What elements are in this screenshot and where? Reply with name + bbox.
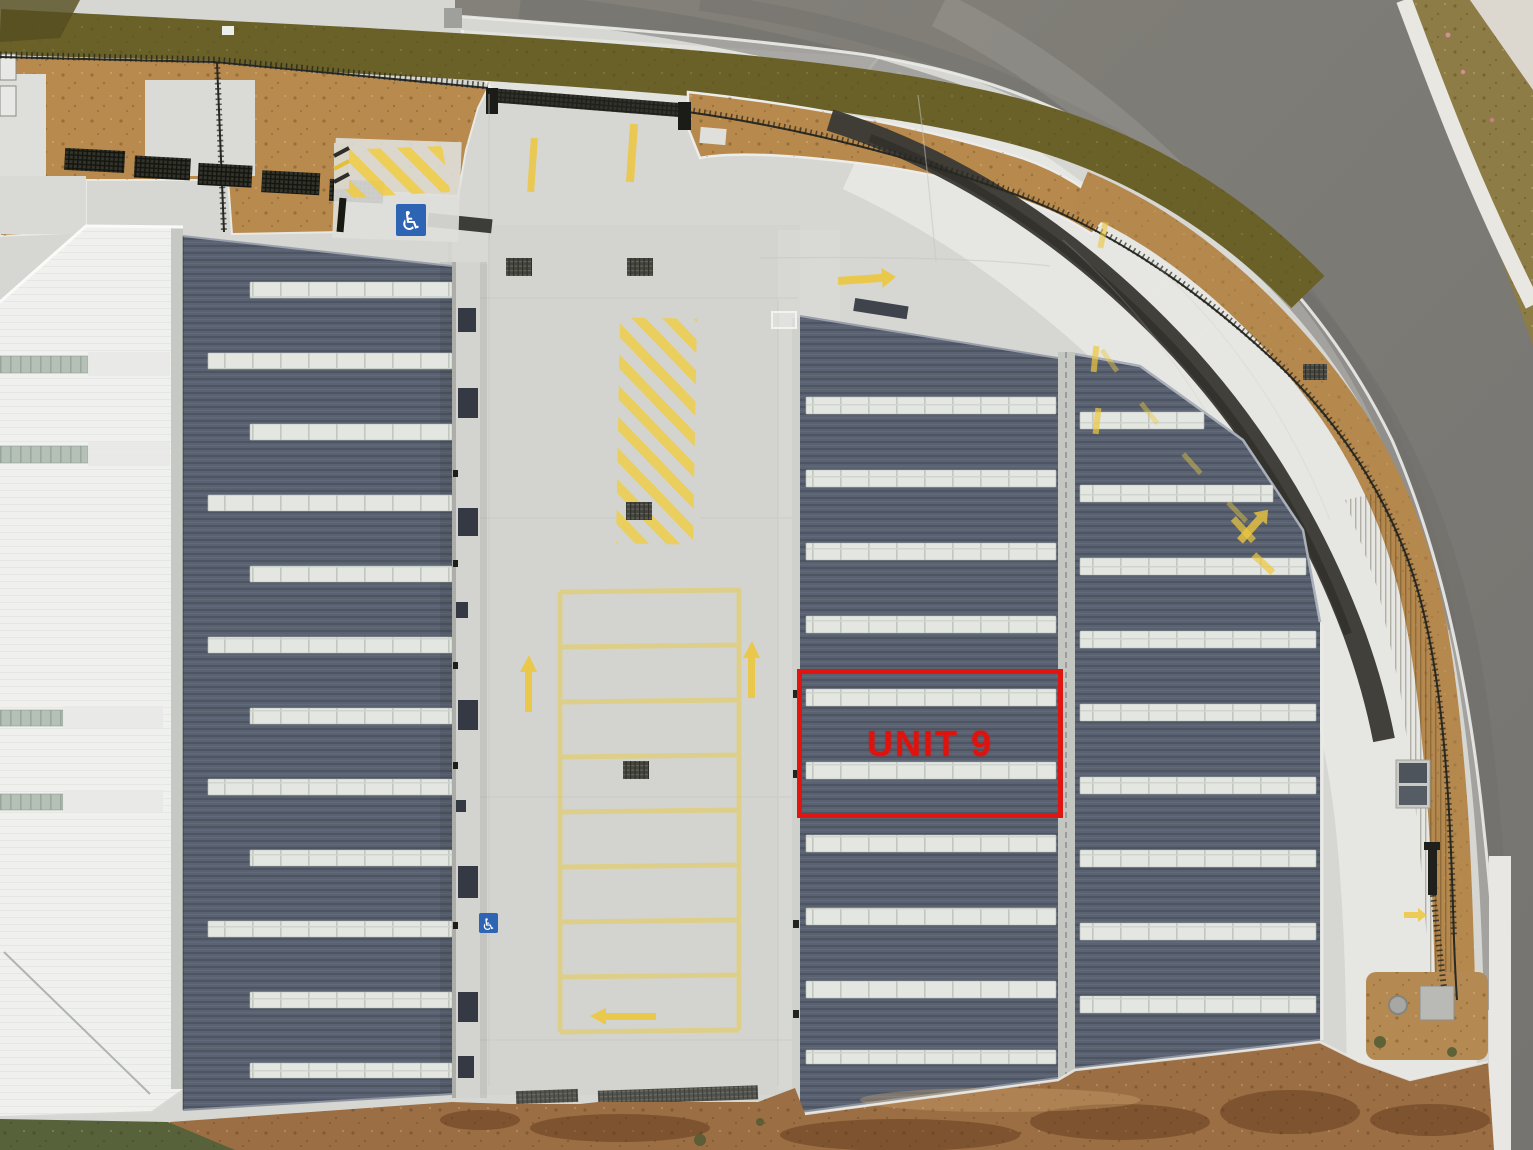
aerial-photo-canvas: ♿ ♿ (0, 0, 1533, 1150)
unit-9-label: UNIT 9 (867, 723, 993, 765)
utility-pad (1420, 986, 1454, 1020)
white-warehouse-roof (0, 226, 183, 1117)
shed (0, 86, 16, 116)
disabled-parking-bay-small: ♿ (479, 913, 498, 934)
hatched-zone-top (338, 146, 450, 198)
manhole-cover (1389, 996, 1407, 1014)
striped-sign (334, 143, 349, 189)
unit-9-annotation-box: UNIT 9 (797, 669, 1063, 818)
gate-post (486, 88, 498, 114)
disabled-parking-bay: ♿ (396, 204, 426, 237)
wheelchair-icon: ♿ (399, 207, 422, 237)
footpath-right (1489, 856, 1511, 1150)
gate-post (678, 102, 691, 130)
wheelchair-icon: ♿ (481, 915, 495, 934)
plant-equipment-pad (1396, 760, 1430, 808)
aerial-site-photo: ♿ ♿ (0, 0, 1533, 1150)
dock-grate (516, 1089, 578, 1104)
painted-outline-box (772, 312, 796, 328)
